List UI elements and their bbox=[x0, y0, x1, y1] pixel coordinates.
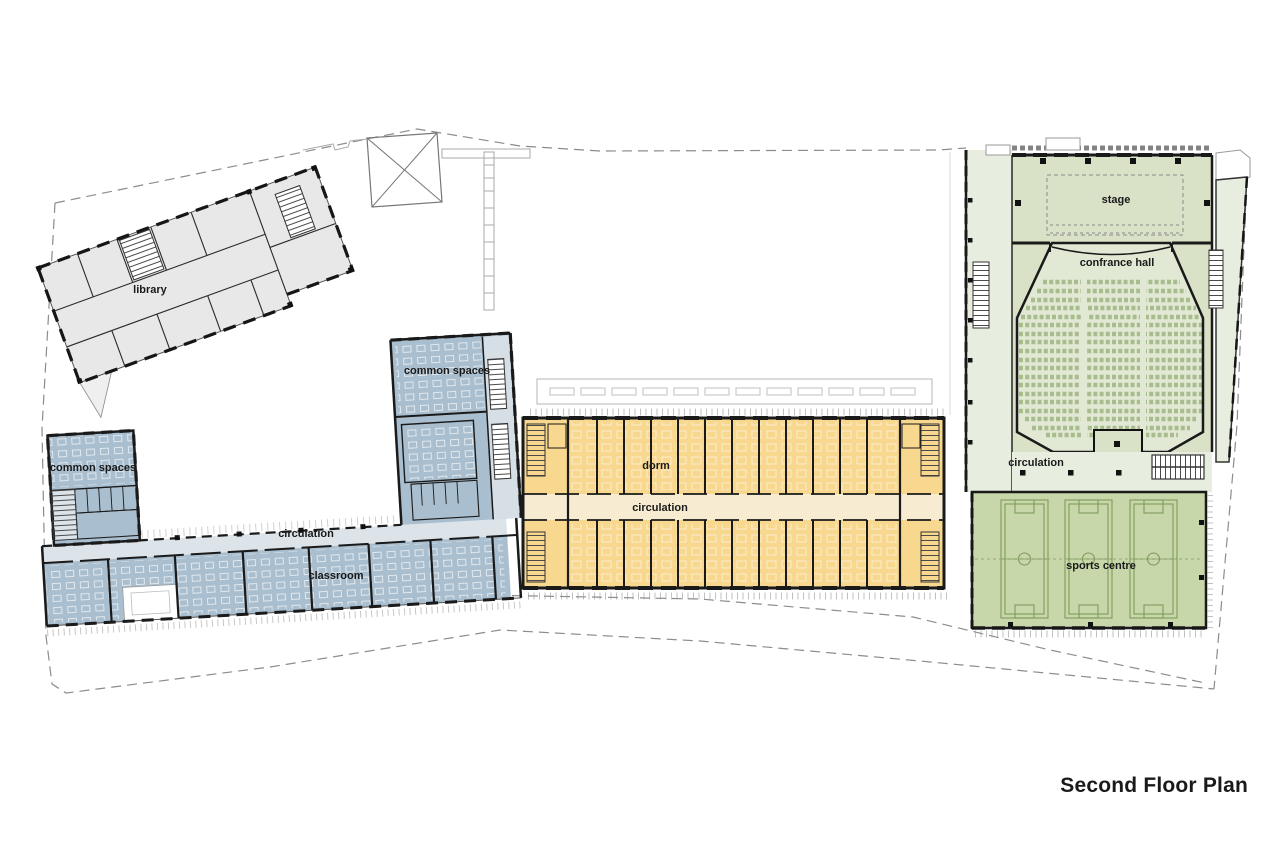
sports-centre-label: sports centre bbox=[1066, 560, 1136, 572]
library-label: library bbox=[133, 284, 168, 296]
plan-title: Second Floor Plan bbox=[1020, 774, 1248, 798]
conference-hall-label: confrance hall bbox=[1080, 257, 1155, 269]
hall-circulation-label: circulation bbox=[1008, 457, 1064, 469]
common-spaces-left-label: common spaces bbox=[50, 462, 136, 474]
dorm-circulation-label: circulation bbox=[632, 502, 688, 514]
dorm-balcony-strip bbox=[537, 379, 932, 404]
dorm-label: dorm bbox=[642, 460, 670, 472]
dorm-building bbox=[523, 412, 948, 596]
floor-plan-drawing: library common spaces common spaces circ… bbox=[0, 0, 1280, 853]
classroom-label: classroom bbox=[308, 570, 363, 582]
stage-label: stage bbox=[1102, 194, 1131, 206]
library-building bbox=[35, 165, 371, 421]
floor-plan-canvas: library common spaces common spaces circ… bbox=[0, 0, 1280, 853]
common-spaces-upper-label: common spaces bbox=[404, 365, 490, 377]
school-circulation-label: circulation bbox=[278, 528, 334, 540]
